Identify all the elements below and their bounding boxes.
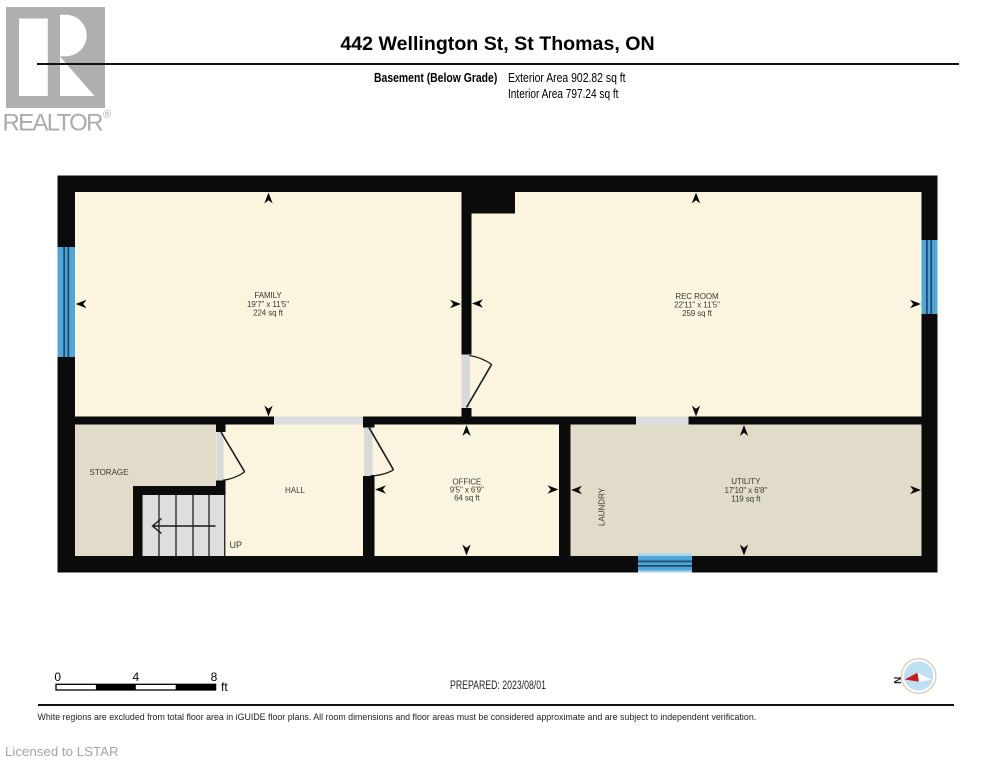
- svg-text:64 sq ft: 64 sq ft: [454, 493, 480, 502]
- svg-text:119 sq ft: 119 sq ft: [731, 495, 761, 504]
- svg-text:HALL: HALL: [285, 486, 306, 495]
- svg-text:8: 8: [211, 670, 218, 684]
- svg-text:FAMILY: FAMILY: [254, 291, 282, 300]
- svg-text:N: N: [893, 677, 904, 684]
- svg-text:UTILITY: UTILITY: [731, 477, 761, 486]
- svg-text:224 sq ft: 224 sq ft: [253, 309, 284, 318]
- svg-text:STORAGE: STORAGE: [90, 468, 129, 477]
- svg-text:17'10" x 6'8": 17'10" x 6'8": [725, 486, 768, 495]
- svg-text:UP: UP: [230, 540, 243, 550]
- svg-text:ft: ft: [221, 680, 228, 694]
- svg-text:259 sq ft: 259 sq ft: [682, 309, 713, 318]
- svg-text:0: 0: [54, 670, 61, 684]
- svg-text:LAUNDRY: LAUNDRY: [598, 487, 607, 526]
- svg-text:4: 4: [132, 670, 139, 684]
